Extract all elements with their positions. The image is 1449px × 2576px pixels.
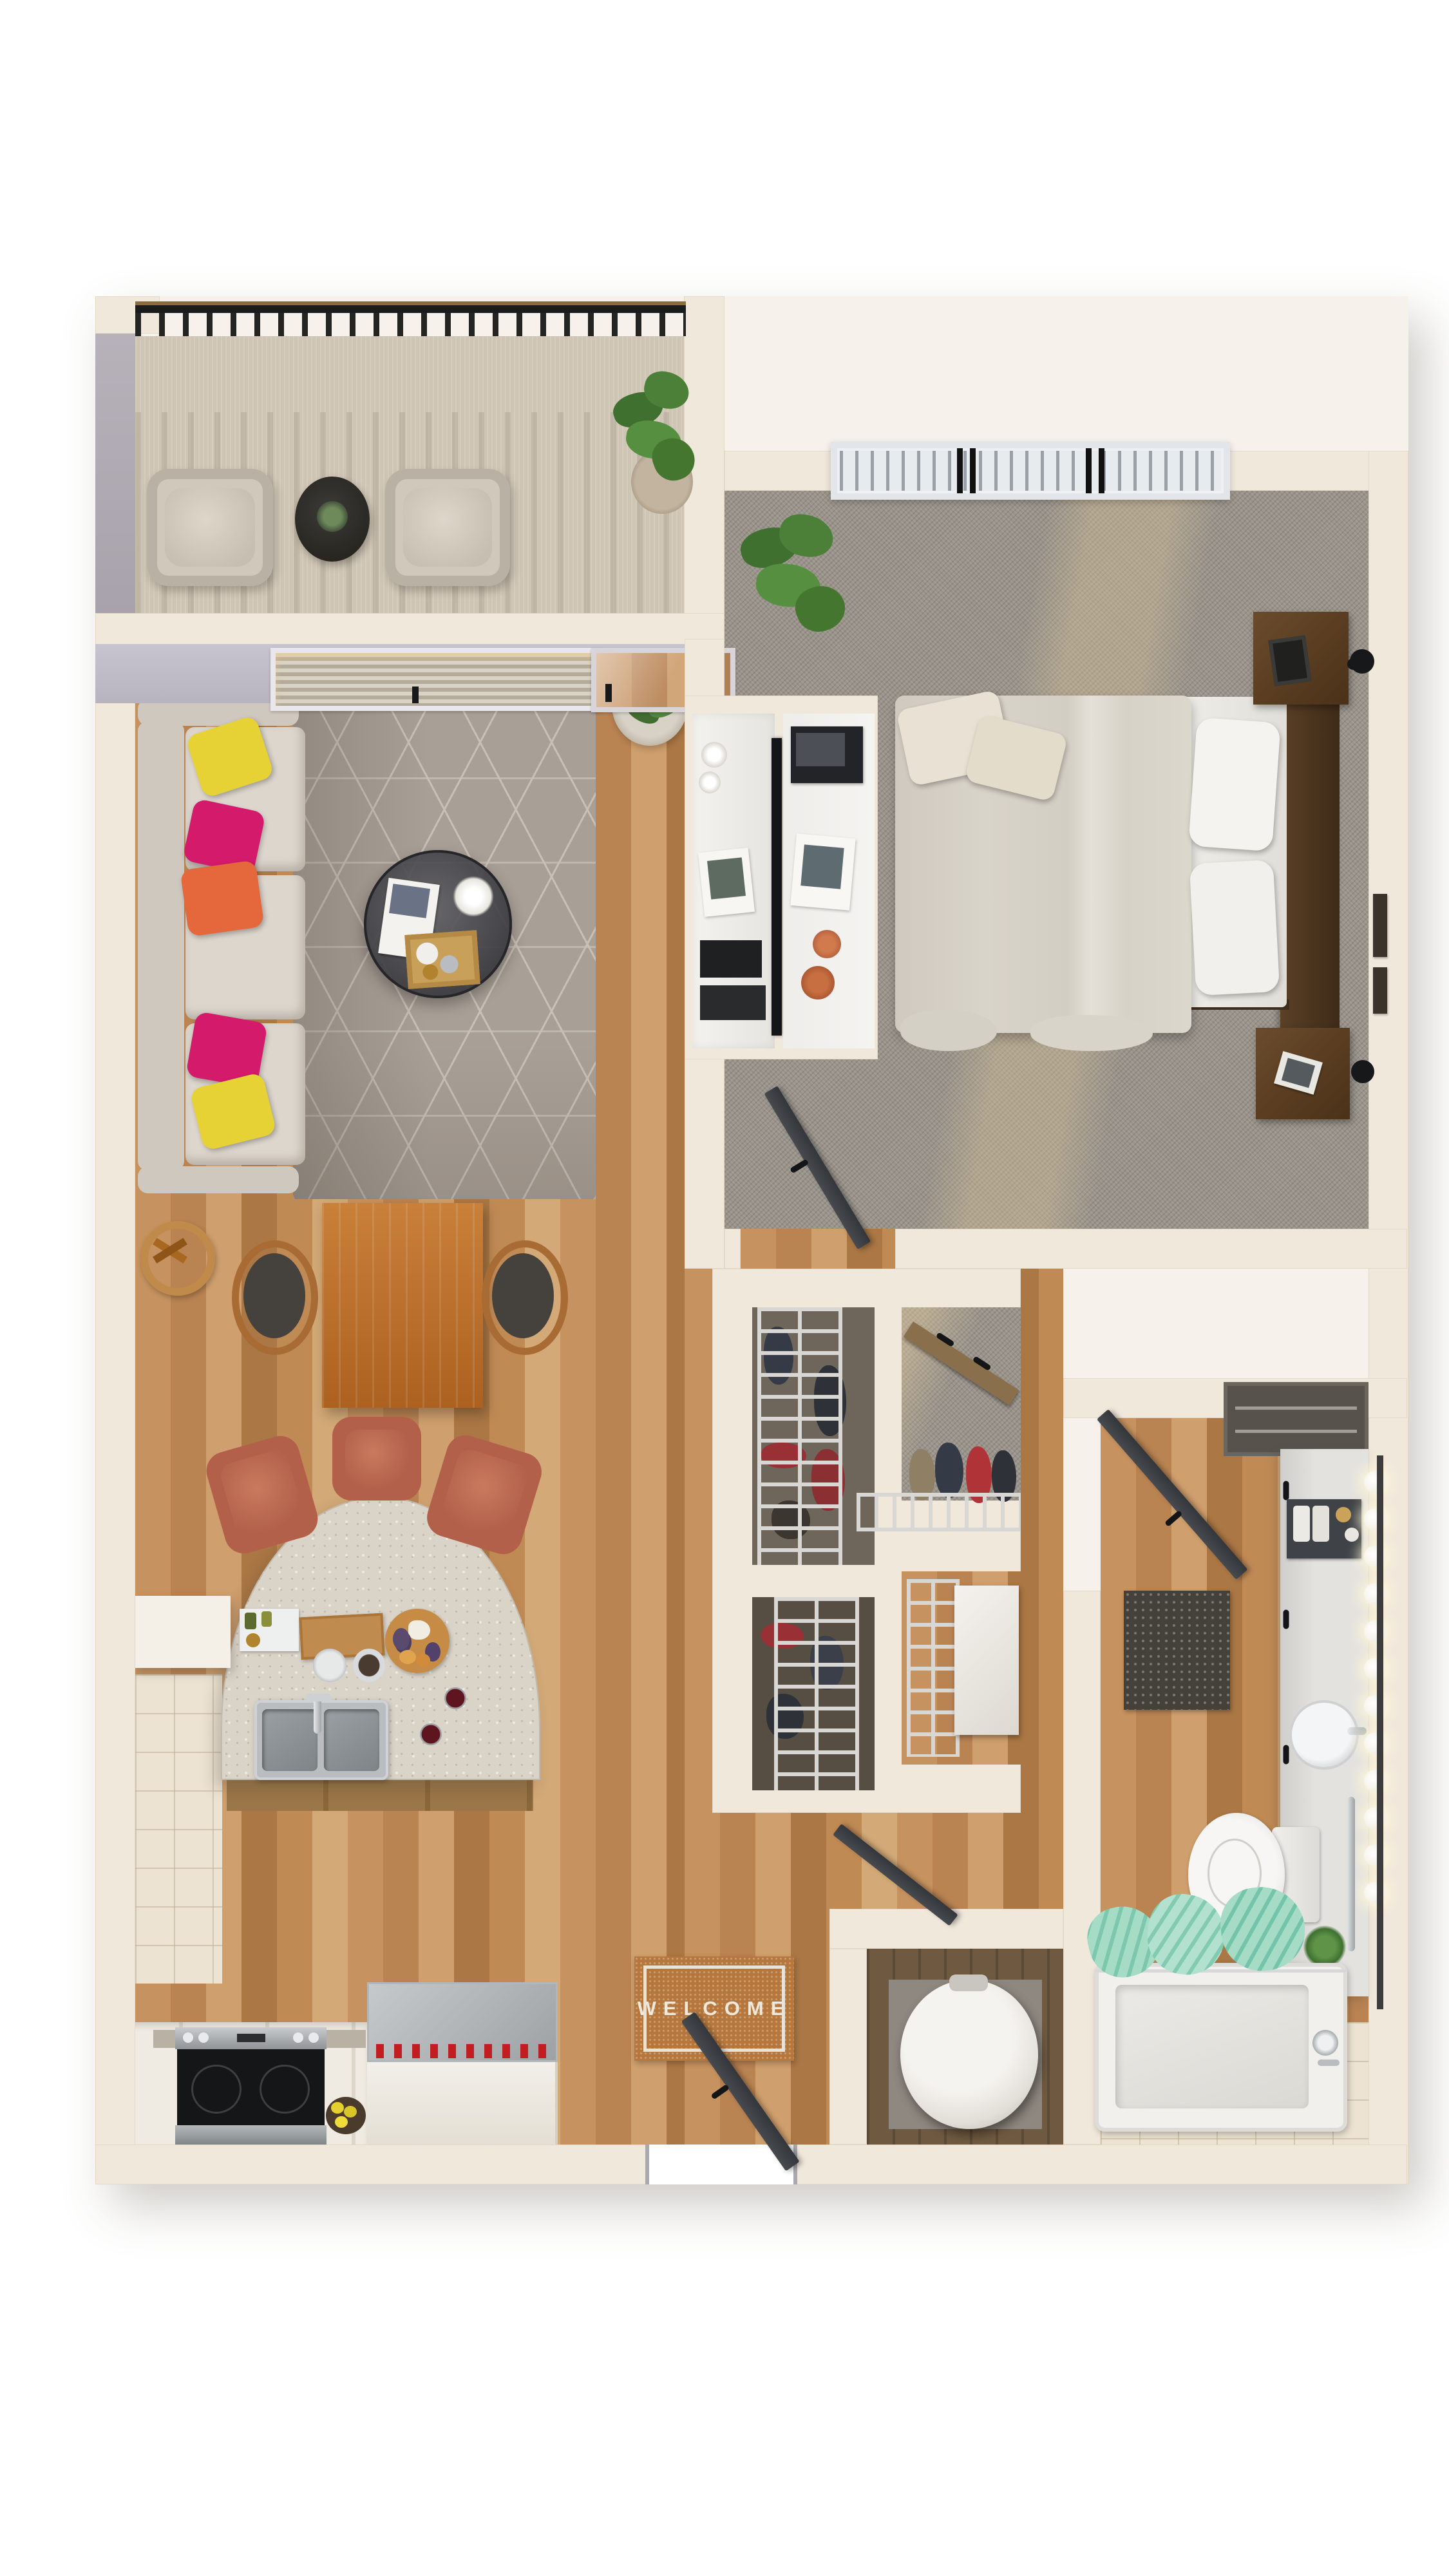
balcony-side-table	[295, 477, 370, 562]
cooktop	[177, 2049, 325, 2125]
bedroom-door-threshold	[741, 1229, 895, 1269]
coffee-table	[364, 850, 512, 998]
bed	[895, 683, 1346, 1056]
linen-niche	[1224, 1382, 1368, 1456]
tv	[772, 738, 782, 1036]
bedroom-bottom-wall	[895, 1229, 1407, 1269]
bed-pillow-white	[1188, 717, 1281, 852]
kitchen-tile-strip	[135, 1674, 222, 1984]
balcony-plant	[613, 367, 700, 528]
refrigerator	[367, 1982, 558, 2146]
bed-headboard	[1280, 684, 1340, 1042]
wood-tray	[404, 930, 480, 989]
wire-shoe-rack	[774, 1597, 859, 1790]
bar-stool	[332, 1417, 421, 1501]
magazine-ring-rack	[140, 1221, 215, 1296]
towel-bar	[1347, 1797, 1355, 1951]
wire-shoe-rack	[757, 1307, 842, 1565]
duvet-drape	[900, 1010, 997, 1051]
hanging-clothes	[935, 1443, 963, 1498]
vanity-globe-lights	[1364, 1455, 1392, 2009]
red-bottle-row	[376, 2044, 549, 2058]
dining-chair	[232, 1240, 317, 1354]
window-sill-counter	[134, 1596, 231, 1668]
closet-cell	[752, 1597, 875, 1790]
living-window	[270, 648, 603, 711]
flower-vase	[453, 876, 494, 917]
balcony-side-wall	[95, 296, 135, 616]
duvet-drape	[1030, 1015, 1153, 1051]
charcuterie-board	[385, 1609, 450, 1673]
wall-sconce	[1350, 649, 1374, 674]
dining-chair	[482, 1240, 567, 1354]
lemon-bowl	[326, 2097, 366, 2134]
window-blinds	[276, 653, 598, 706]
floor-plan-render: WELCOME	[0, 0, 1449, 2576]
shower-curtain-mint	[1088, 1887, 1320, 1984]
wall-art	[1373, 894, 1387, 957]
pour-over-kettle	[313, 1649, 346, 1682]
range	[175, 2027, 327, 2146]
wall-art	[1373, 967, 1387, 1014]
wall-sconce	[1351, 1060, 1374, 1083]
peninsula-cabinet-fronts	[227, 1777, 533, 1811]
utility-closet-left-wall	[829, 1949, 867, 2145]
kitchen-sink	[254, 1700, 388, 1780]
nightstand	[1253, 612, 1349, 705]
tub-faucet	[1312, 2030, 1338, 2056]
oven-handle	[175, 2125, 327, 2146]
living-top-wall-outer	[95, 613, 724, 645]
sofa-arm-bottom	[138, 1166, 299, 1193]
sofa-backrest	[138, 722, 184, 1170]
closet-hanging-rail	[857, 1493, 1021, 1531]
vanity-sink	[1289, 1700, 1359, 1770]
nightstand	[1256, 1028, 1350, 1119]
prep-box	[240, 1609, 299, 1651]
balcony-armchair	[147, 469, 273, 586]
bath-shag-mat	[1124, 1591, 1230, 1710]
air-vent	[831, 442, 1230, 500]
coffee-dripper	[353, 1649, 385, 1682]
bed-pillow-white	[1189, 860, 1280, 996]
wine-glass	[444, 1687, 466, 1709]
water-heater	[900, 1980, 1038, 2129]
balcony-railing	[135, 301, 686, 336]
faucet	[314, 1696, 321, 1734]
bathtub	[1095, 1963, 1347, 2132]
patio-door-handle	[605, 684, 612, 702]
bedroom-desk	[783, 714, 875, 1048]
bedroom-bottom-wall	[724, 1229, 741, 1269]
pillow-orange	[180, 860, 264, 936]
sofa	[138, 699, 309, 1193]
balcony-armchair	[385, 469, 510, 586]
storage-unit	[954, 1586, 1019, 1735]
window-handle	[412, 687, 419, 703]
tv-console	[692, 714, 775, 1048]
dining-table	[322, 1203, 483, 1408]
bedroom-plant	[734, 509, 857, 644]
magazine-cover	[389, 884, 430, 918]
louvered-rack	[907, 1579, 960, 1757]
vanity-tray	[1287, 1499, 1361, 1558]
wine-glass	[420, 1723, 442, 1745]
